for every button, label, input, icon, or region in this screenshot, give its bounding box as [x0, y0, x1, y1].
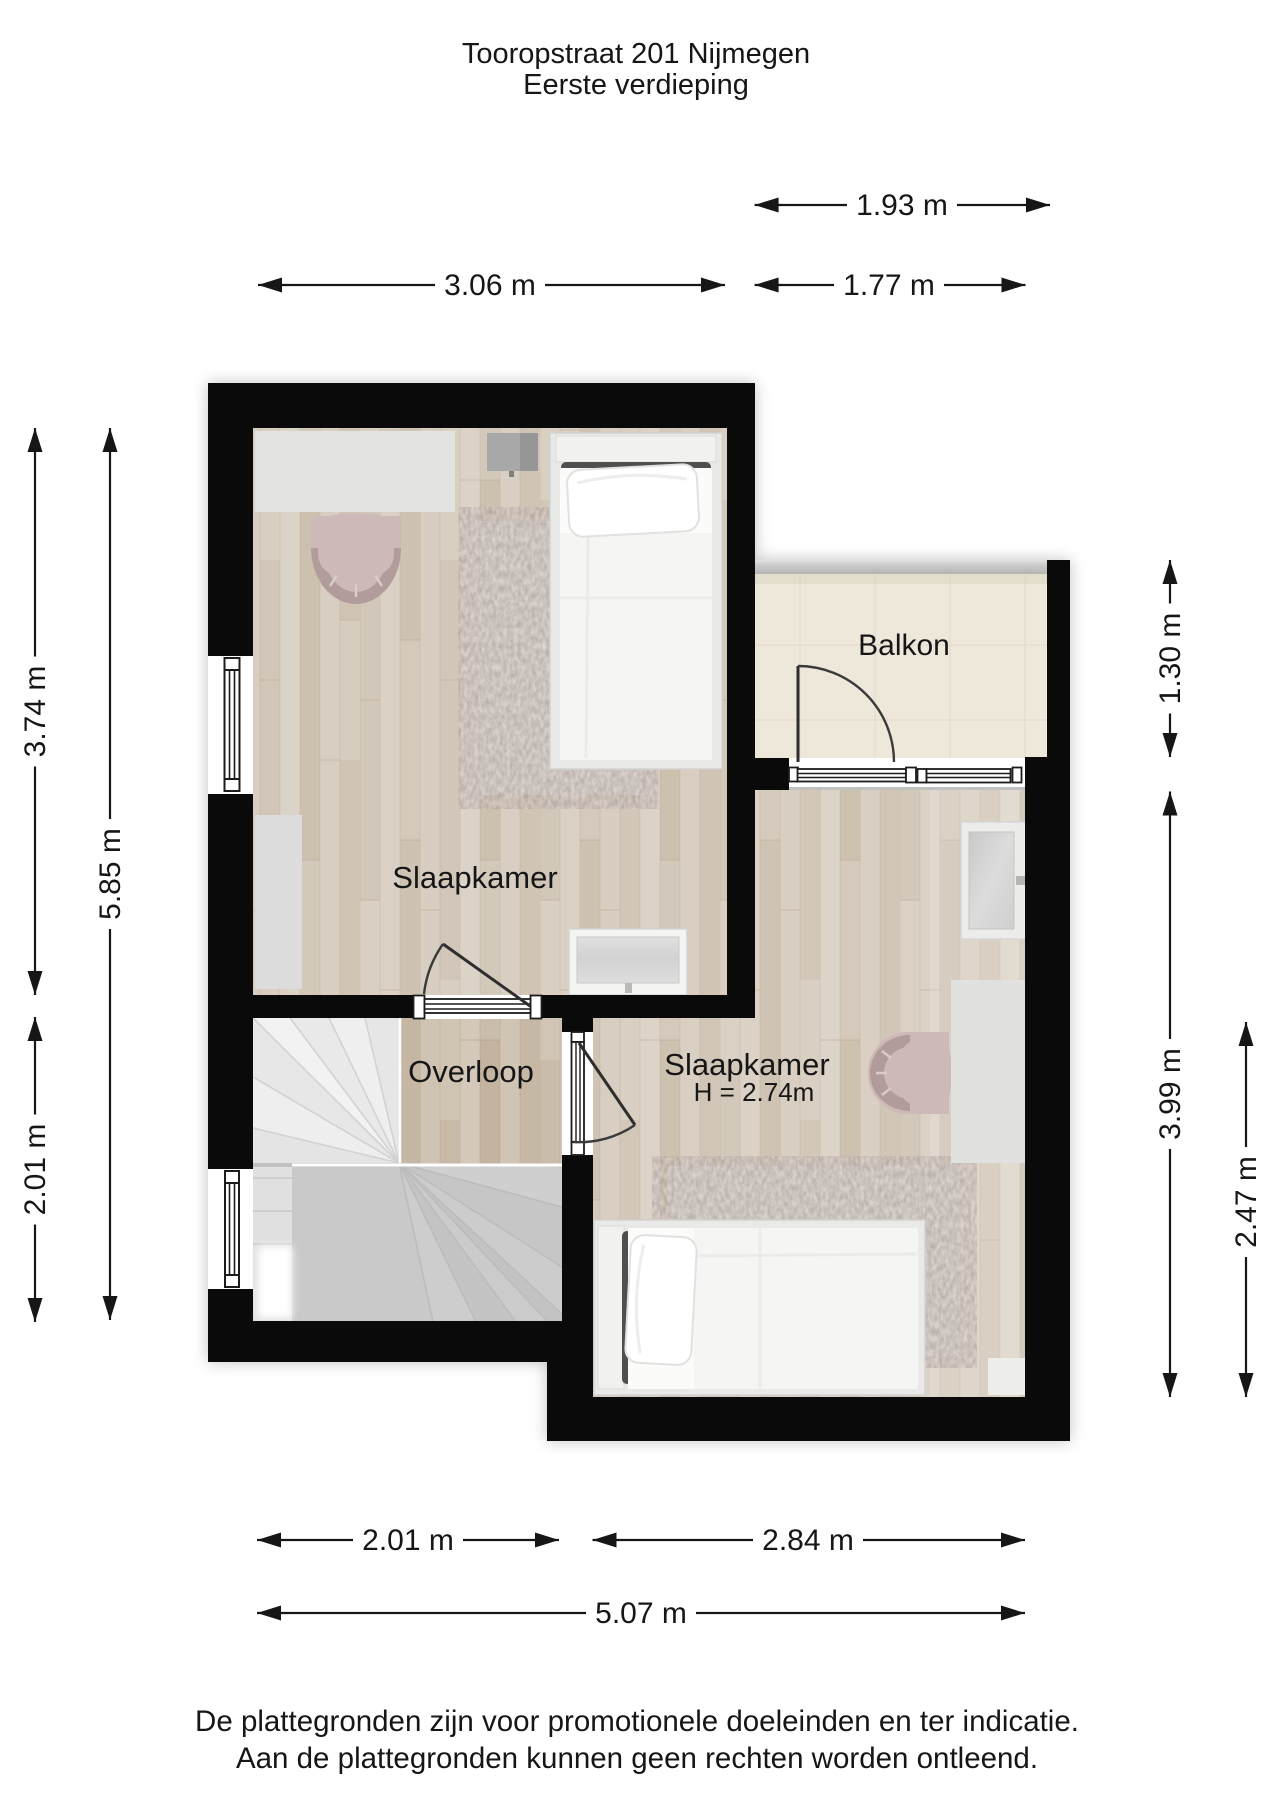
svg-text:2.01 m: 2.01 m [362, 1524, 454, 1557]
svg-text:1.93 m: 1.93 m [856, 189, 948, 222]
svg-text:Overloop: Overloop [408, 1054, 534, 1089]
svg-text:De plattegronden zijn voor pro: De plattegronden zijn voor promotionele … [195, 1705, 1079, 1738]
svg-text:Slaapkamer: Slaapkamer [392, 860, 557, 895]
svg-text:2.01 m: 2.01 m [19, 1124, 52, 1216]
svg-text:Tooropstraat 201 Nijmegen: Tooropstraat 201 Nijmegen [462, 38, 810, 70]
svg-text:5.07 m: 5.07 m [595, 1597, 687, 1630]
svg-text:Aan de plattegronden kunnen ge: Aan de plattegronden kunnen geen rechten… [236, 1742, 1038, 1775]
svg-text:2.47 m: 2.47 m [1230, 1156, 1263, 1248]
svg-text:Eerste verdieping: Eerste verdieping [523, 69, 749, 101]
svg-text:3.99 m: 3.99 m [1154, 1048, 1187, 1140]
svg-text:5.85 m: 5.85 m [94, 828, 127, 920]
svg-text:3.74 m: 3.74 m [19, 666, 52, 758]
svg-text:1.30 m: 1.30 m [1154, 613, 1187, 705]
svg-text:H = 2.74m: H = 2.74m [694, 1077, 815, 1107]
svg-text:2.84 m: 2.84 m [762, 1524, 854, 1557]
svg-text:3.06 m: 3.06 m [444, 269, 536, 302]
svg-text:Balkon: Balkon [858, 629, 950, 662]
svg-text:1.77 m: 1.77 m [843, 269, 935, 302]
